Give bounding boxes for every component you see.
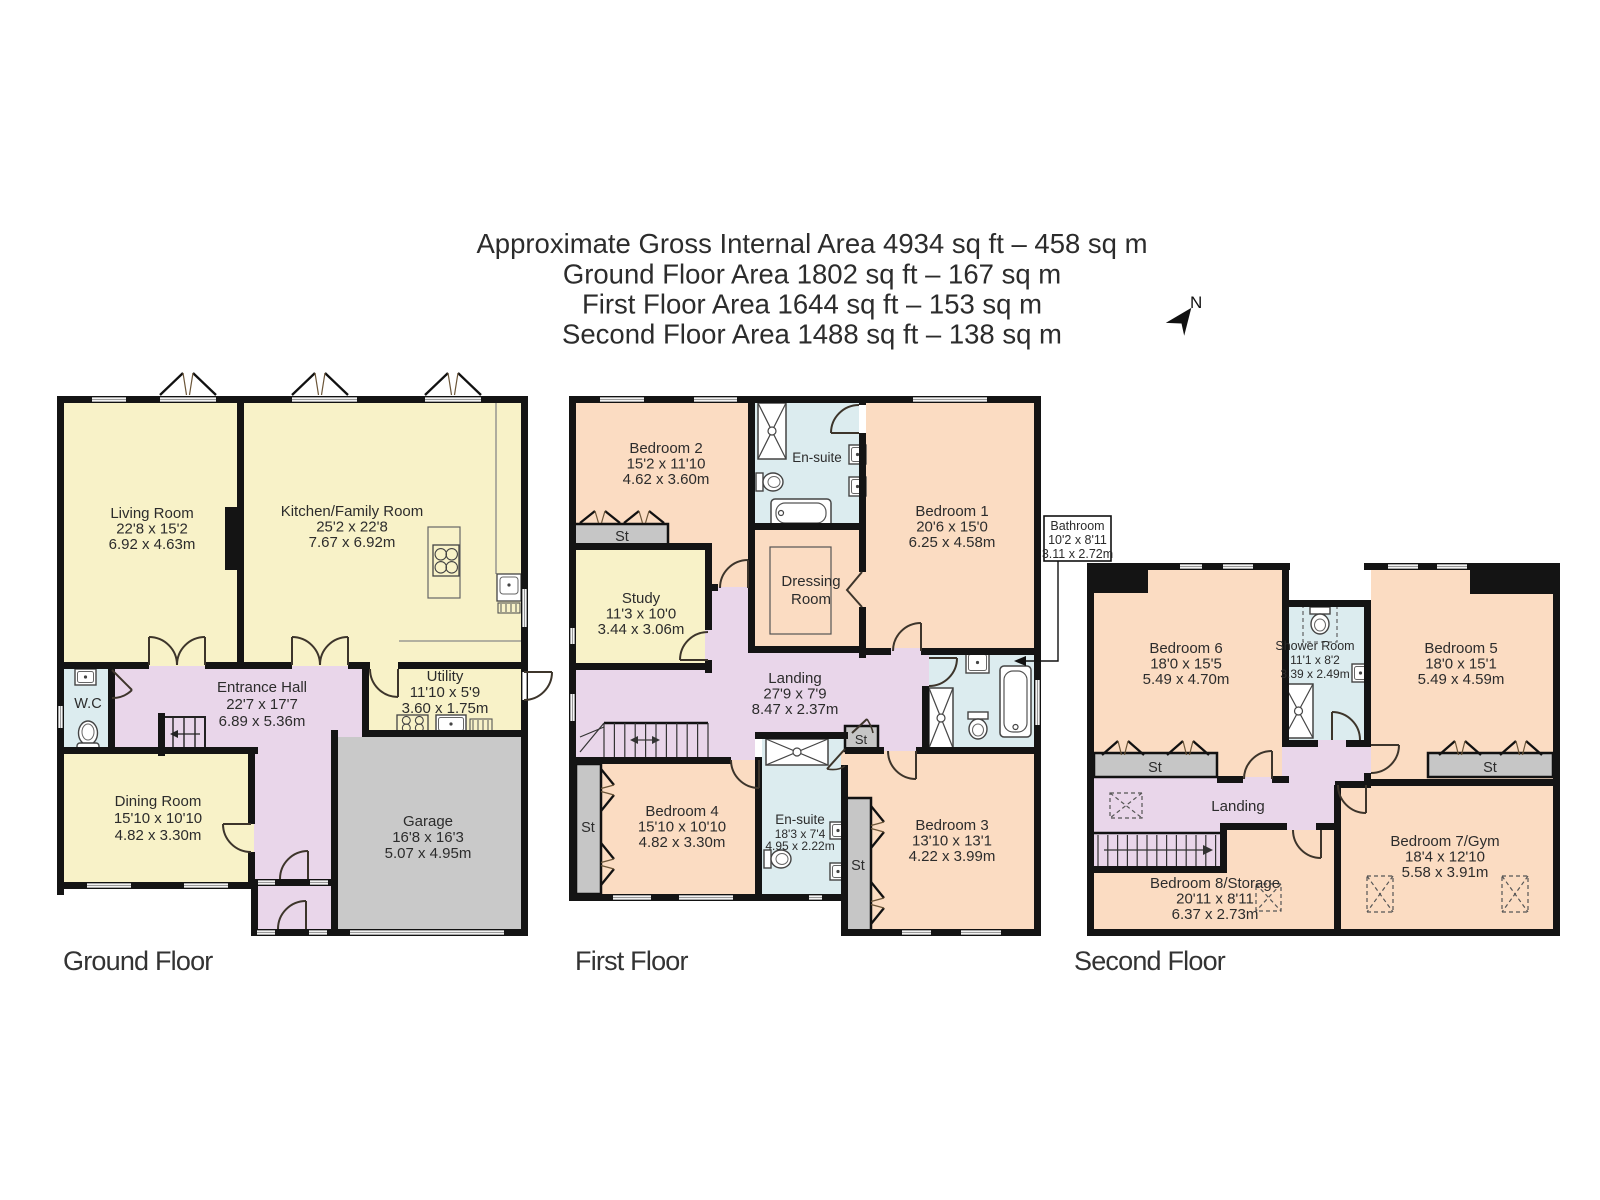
svg-text:Bedroom 1: Bedroom 1 <box>915 503 988 520</box>
svg-text:First Floor: First Floor <box>575 946 689 976</box>
svg-text:Second Floor Area 1488 sq ft –: Second Floor Area 1488 sq ft – 138 sq m <box>562 319 1062 350</box>
svg-text:22'7 x 17'7: 22'7 x 17'7 <box>226 696 298 713</box>
svg-text:Landing: Landing <box>768 670 821 687</box>
svg-text:Dining Room: Dining Room <box>115 793 202 810</box>
svg-text:Second Floor: Second Floor <box>1074 946 1226 976</box>
svg-text:Bathroom: Bathroom <box>1050 519 1104 533</box>
svg-text:W.C: W.C <box>74 696 101 712</box>
svg-text:6.37 x 2.73m: 6.37 x 2.73m <box>1172 906 1259 923</box>
svg-text:Kitchen/Family Room: Kitchen/Family Room <box>281 503 424 520</box>
svg-text:N: N <box>1190 293 1202 312</box>
svg-text:18'4 x 12'10: 18'4 x 12'10 <box>1405 849 1485 866</box>
svg-text:3.44 x 3.06m: 3.44 x 3.06m <box>598 621 685 638</box>
svg-text:6.92 x 4.63m: 6.92 x 4.63m <box>109 536 196 553</box>
svg-text:20'6 x 15'0: 20'6 x 15'0 <box>916 519 988 536</box>
svg-text:15'2 x 11'10: 15'2 x 11'10 <box>627 456 706 473</box>
svg-text:St: St <box>851 858 865 874</box>
svg-text:St: St <box>615 529 629 545</box>
svg-text:6.25 x 4.58m: 6.25 x 4.58m <box>909 534 996 551</box>
svg-text:4.62 x 3.60m: 4.62 x 3.60m <box>623 471 710 488</box>
svg-text:Living Room: Living Room <box>110 505 193 522</box>
svg-text:Bedroom 8/Storage: Bedroom 8/Storage <box>1150 875 1280 892</box>
svg-text:18'0 x 15'5: 18'0 x 15'5 <box>1150 656 1222 673</box>
svg-text:Bedroom 3: Bedroom 3 <box>915 817 988 834</box>
svg-text:En-suite: En-suite <box>775 812 825 827</box>
svg-text:11'10 x 5'9: 11'10 x 5'9 <box>410 684 481 701</box>
svg-text:Bedroom 2: Bedroom 2 <box>629 440 702 457</box>
svg-text:25'2 x 22'8: 25'2 x 22'8 <box>316 519 388 536</box>
svg-text:Ground Floor: Ground Floor <box>63 946 213 976</box>
svg-text:6.89 x 5.36m: 6.89 x 5.36m <box>219 713 306 730</box>
svg-text:3.39 x 2.49m: 3.39 x 2.49m <box>1280 667 1349 681</box>
svg-text:8.47 x 2.37m: 8.47 x 2.37m <box>752 701 839 718</box>
svg-text:Approximate Gross Internal Are: Approximate Gross Internal Area 4934 sq … <box>476 228 1147 259</box>
svg-text:Shower Room: Shower Room <box>1275 639 1354 653</box>
svg-text:4.82 x 3.30m: 4.82 x 3.30m <box>115 827 202 844</box>
svg-text:4.22 x 3.99m: 4.22 x 3.99m <box>909 848 996 865</box>
svg-text:Bedroom 5: Bedroom 5 <box>1424 640 1497 657</box>
svg-text:St: St <box>855 732 868 747</box>
svg-text:4.95 x 2.22m: 4.95 x 2.22m <box>765 839 834 853</box>
svg-text:First Floor Area 1644 sq ft –: First Floor Area 1644 sq ft – 153 sq m <box>582 289 1042 320</box>
svg-text:7.67 x 6.92m: 7.67 x 6.92m <box>309 534 396 551</box>
svg-text:18'0 x 15'1: 18'0 x 15'1 <box>1425 656 1497 673</box>
svg-text:3.11 x 2.72m: 3.11 x 2.72m <box>1042 547 1113 561</box>
svg-text:Entrance Hall: Entrance Hall <box>217 679 307 696</box>
svg-text:Landing: Landing <box>1211 798 1264 815</box>
svg-text:15'10 x 10'10: 15'10 x 10'10 <box>638 819 726 836</box>
svg-text:Garage: Garage <box>403 813 453 830</box>
svg-text:St: St <box>1483 760 1497 776</box>
svg-text:En-suite: En-suite <box>792 450 842 465</box>
svg-text:3.60 x 1.75m: 3.60 x 1.75m <box>402 700 489 717</box>
svg-text:Utility: Utility <box>427 668 464 685</box>
svg-text:22'8 x 15'2: 22'8 x 15'2 <box>116 521 188 538</box>
svg-text:5.49 x 4.70m: 5.49 x 4.70m <box>1143 671 1230 688</box>
svg-text:Room: Room <box>791 591 831 608</box>
svg-text:Bedroom 7/Gym: Bedroom 7/Gym <box>1390 833 1499 850</box>
svg-text:15'10 x 10'10: 15'10 x 10'10 <box>114 810 202 827</box>
svg-text:Dressing: Dressing <box>781 573 840 590</box>
svg-text:4.82 x 3.30m: 4.82 x 3.30m <box>639 834 726 851</box>
svg-text:5.49 x 4.59m: 5.49 x 4.59m <box>1418 671 1505 688</box>
svg-text:Bedroom 6: Bedroom 6 <box>1149 640 1222 657</box>
svg-text:Bedroom 4: Bedroom 4 <box>645 803 718 820</box>
svg-text:5.58 x 3.91m: 5.58 x 3.91m <box>1402 864 1489 881</box>
svg-text:13'10 x 13'1: 13'10 x 13'1 <box>912 833 992 850</box>
svg-text:27'9 x 7'9: 27'9 x 7'9 <box>763 686 826 703</box>
svg-text:11'1 x 8'2: 11'1 x 8'2 <box>1290 653 1340 667</box>
svg-text:16'8 x 16'3: 16'8 x 16'3 <box>392 829 464 846</box>
svg-text:St: St <box>1148 760 1162 776</box>
svg-text:10'2 x 8'11: 10'2 x 8'11 <box>1048 533 1107 547</box>
svg-text:Study: Study <box>622 590 661 607</box>
svg-text:5.07 x 4.95m: 5.07 x 4.95m <box>385 845 472 862</box>
svg-text:20'11 x 8'11: 20'11 x 8'11 <box>1176 891 1254 908</box>
svg-text:11'3 x 10'0: 11'3 x 10'0 <box>606 606 677 623</box>
svg-text:Ground Floor Area 1802 sq ft –: Ground Floor Area 1802 sq ft – 167 sq m <box>563 259 1061 290</box>
svg-text:St: St <box>581 820 595 836</box>
